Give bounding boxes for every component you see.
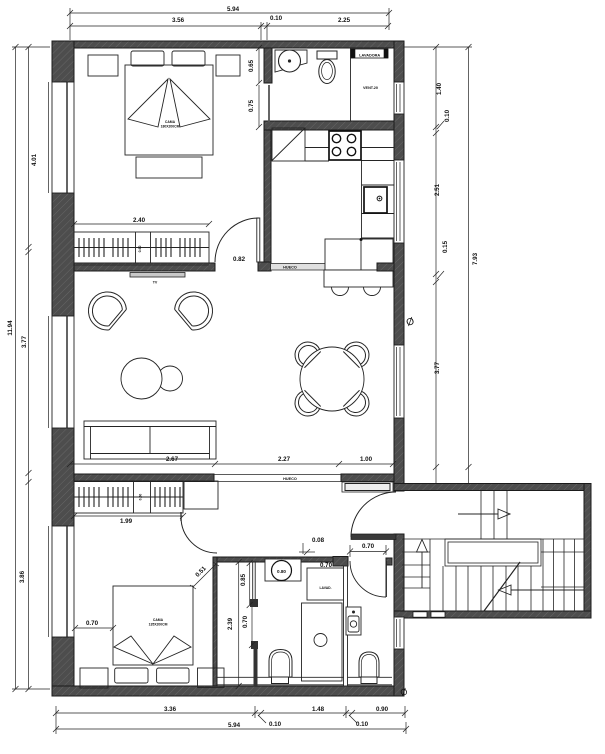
svg-text:0.70: 0.70 <box>242 615 249 628</box>
svg-text:3.86: 3.86 <box>19 570 26 583</box>
svg-text:CAMA: CAMA <box>165 120 176 124</box>
svg-text:HUECO: HUECO <box>283 477 297 481</box>
svg-text:LAVADORA: LAVADORA <box>359 53 380 57</box>
svg-text:0.60: 0.60 <box>138 246 142 253</box>
svg-text:0.10: 0.10 <box>356 721 369 728</box>
svg-text:0.10: 0.10 <box>444 109 451 122</box>
svg-text:0.75: 0.75 <box>248 99 255 112</box>
svg-text:11.94: 11.94 <box>7 320 14 336</box>
svg-text:1.99: 1.99 <box>120 518 133 525</box>
svg-text:0.65: 0.65 <box>248 59 255 72</box>
svg-text:3.56: 3.56 <box>172 17 185 24</box>
svg-text:3.36: 3.36 <box>164 706 177 713</box>
svg-text:0.08: 0.08 <box>312 537 325 544</box>
svg-text:2.25: 2.25 <box>338 17 351 24</box>
svg-text:7.93: 7.93 <box>472 252 479 265</box>
svg-text:TV: TV <box>153 281 158 285</box>
svg-text:HUECO: HUECO <box>283 265 297 269</box>
svg-text:0.70: 0.70 <box>86 620 99 627</box>
svg-text:180X200CM: 180X200CM <box>161 125 180 129</box>
svg-text:0.10: 0.10 <box>270 15 283 22</box>
svg-text:0.90: 0.90 <box>376 706 389 713</box>
svg-text:2.67: 2.67 <box>166 456 179 463</box>
svg-text:0.10: 0.10 <box>269 721 282 728</box>
svg-text:0.15: 0.15 <box>442 240 449 253</box>
svg-text:0.70: 0.70 <box>320 562 333 569</box>
svg-text:1.48: 1.48 <box>312 706 325 713</box>
svg-text:0.70: 0.70 <box>362 543 375 550</box>
svg-text:2.51: 2.51 <box>434 183 441 196</box>
svg-text:4.01: 4.01 <box>31 153 38 166</box>
svg-text:2.27: 2.27 <box>278 456 291 463</box>
svg-text:2.39: 2.39 <box>227 617 234 630</box>
svg-text:135X200CM: 135X200CM <box>149 623 168 627</box>
svg-text:0.85: 0.85 <box>240 573 247 586</box>
svg-text:0.82: 0.82 <box>233 256 246 263</box>
svg-text:5.94: 5.94 <box>228 722 241 729</box>
svg-text:1.40: 1.40 <box>436 82 443 95</box>
svg-text:1.00: 1.00 <box>360 456 373 463</box>
svg-text:0.80: 0.80 <box>277 569 286 574</box>
svg-text:3.77: 3.77 <box>434 361 441 374</box>
svg-text:CAMA: CAMA <box>153 618 164 622</box>
svg-text:VENT.20: VENT.20 <box>363 86 378 90</box>
svg-text:5.94: 5.94 <box>227 6 240 13</box>
svg-text:LAVAD.: LAVAD. <box>319 586 331 590</box>
svg-text:0.60: 0.60 <box>139 494 143 501</box>
svg-text:2.40: 2.40 <box>133 217 146 224</box>
svg-text:3.77: 3.77 <box>21 335 28 348</box>
